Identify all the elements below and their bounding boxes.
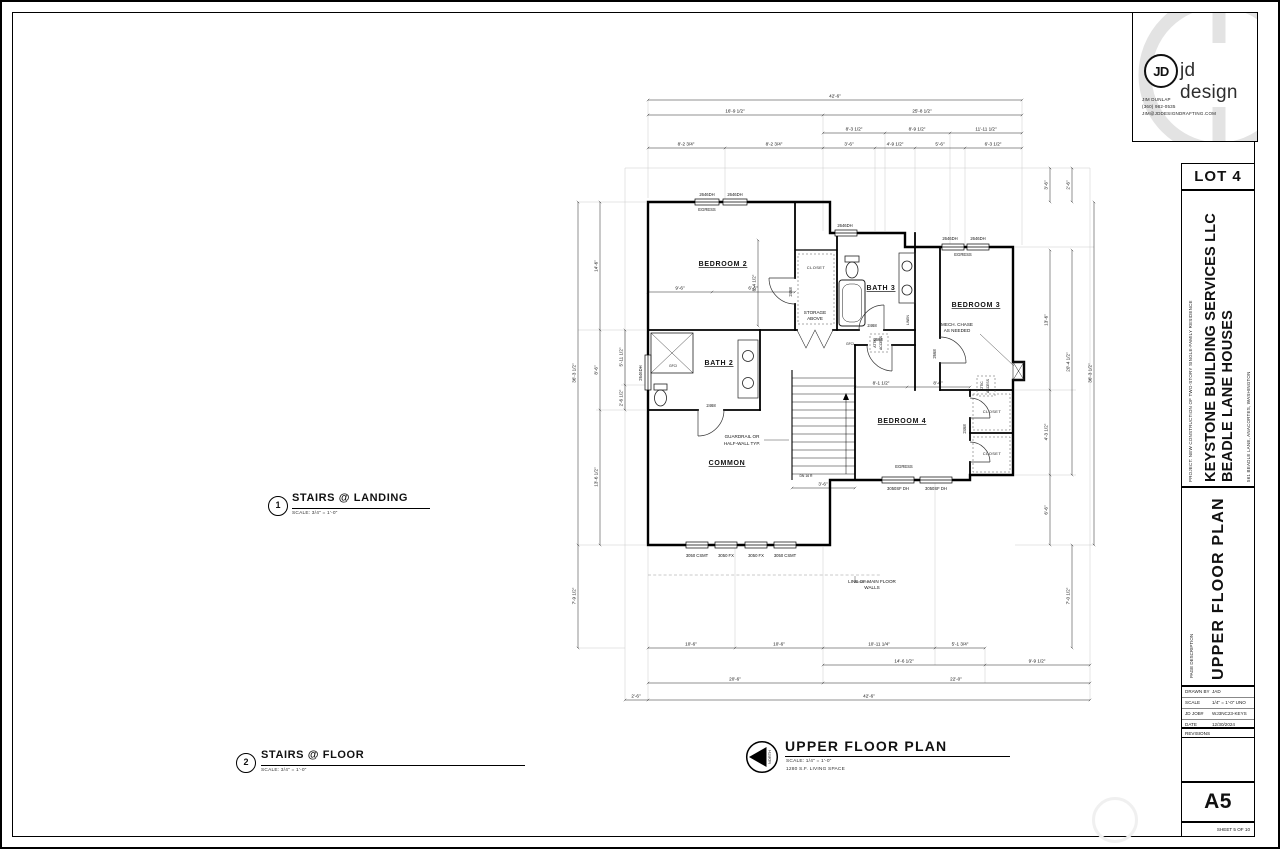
job-label: JD JOB#: [1182, 709, 1212, 719]
callout-1-bubble: 1: [268, 496, 288, 516]
callout-2-bubble: 2: [236, 753, 256, 773]
dim-label: 7'-0 1/2": [1066, 587, 1071, 604]
room-label-closet: CLOSET: [807, 265, 826, 270]
egress-label: EGRESS: [698, 207, 716, 212]
dim-label: 36'-3 1/2": [1088, 363, 1093, 383]
room-label-common: COMMON: [709, 460, 746, 467]
dim-label: 9'-6": [675, 286, 685, 291]
dim-label: 42'-6": [863, 694, 875, 699]
dim-label: 5'-1 3/4": [952, 642, 969, 647]
sheet-number: A5: [1181, 782, 1255, 822]
stairs-dn-note: DN 16 R: [799, 474, 813, 478]
dim-label: 6'-6": [1044, 505, 1049, 515]
door-tag: 2468: [788, 287, 793, 297]
project-address: 561 BEADLE LANE, ANACORTES, WASHINGTON: [1246, 371, 1251, 482]
mech-chase-note: MECH. CHASE: [941, 322, 973, 327]
door-tag: 2468: [867, 323, 877, 328]
callout-1-underline: [292, 508, 430, 509]
dim-label: 13'-6 1/2": [594, 467, 599, 487]
sheet-page-title: UPPER FLOOR PLAN: [1210, 497, 1228, 680]
door-tag: 2468: [706, 403, 716, 408]
guardrail-note: GUARDRAIL OR: [725, 434, 760, 439]
dim-label: 3'-6": [1044, 180, 1049, 190]
jd-monogram-icon: JD: [1153, 64, 1169, 79]
dim-label: 8'-3 1/2": [846, 127, 863, 132]
contact-email: JIM@JDDESIGNDRAFTING.COM: [1142, 110, 1216, 117]
sheet-count-label: SHEET 5 OF 10: [1181, 822, 1255, 837]
plan-title: UPPER FLOOR PLAN: [785, 738, 947, 754]
client-line2: BEADLE LANE HOUSES: [1220, 213, 1237, 482]
north-arrow-icon: NORTH: [745, 740, 779, 774]
revisions-label: REVISIONS: [1182, 729, 1254, 738]
dim-label: 14'-6 1/2": [894, 659, 914, 664]
room-label-closet: CLOSET: [983, 451, 1002, 456]
callout-1-scale: SCALE: 3/4" = 1'-0": [292, 511, 338, 516]
dim-label: 13'-6": [1044, 314, 1049, 326]
window-tag: 3050 CSMT: [774, 553, 797, 558]
door-tag: 2468: [962, 424, 967, 434]
contact-name: JIM DUNLAP: [1142, 96, 1216, 103]
window-tag: 3050 FX: [718, 553, 734, 558]
door-tag: 2668: [873, 337, 883, 342]
door-tag: 2668: [932, 349, 937, 359]
room-label-bedroom2: BEDROOM 2: [699, 261, 748, 268]
dim-label: 2'-6 1/2": [619, 389, 624, 406]
dim-label: 5'-11 1/2": [619, 347, 624, 366]
storage-note: STORAGE: [804, 310, 826, 315]
window-tag: 3050 FX: [748, 553, 764, 558]
dim-label: 8'-2 3/4": [766, 142, 783, 147]
dimension-labels: 42'-6" 16'-9 1/2" 25'-8 1/2" 8'-3 1/2" 8…: [572, 94, 1093, 699]
window-tag: 3050SF DH: [925, 486, 947, 491]
window-tag: 2646DH: [970, 236, 985, 241]
dim-label: 10'-6": [685, 642, 697, 647]
dim-label: 10'-6": [773, 642, 785, 647]
main-floor-walls-note: WALLS: [864, 585, 879, 590]
client-line1: KEYSTONE BUILDING SERVICES LLC: [1203, 213, 1220, 482]
job-row: JD JOB# WJ3NC23-KEYS: [1182, 709, 1254, 720]
callout-2-title: STAIRS @ FLOOR: [261, 749, 364, 761]
window-tag: 3050 CSMT: [686, 553, 709, 558]
stairs: [792, 370, 855, 480]
linen-label: LINEN: [906, 314, 910, 325]
dim-label: 8'-1 1/2": [873, 381, 890, 386]
dim-label: 42'-6": [829, 94, 841, 99]
egress-label: EGRESS: [895, 464, 913, 469]
dim-label: 4'-3 1/2": [1044, 423, 1049, 440]
plan-title-scale: SCALE: 1/4" = 1'-0": [786, 759, 832, 764]
storage-note: ABOVE: [807, 316, 823, 321]
room-label-bath3: BATH 3: [867, 285, 896, 292]
north-label: NORTH: [767, 750, 772, 764]
attic-access-note: ACCESS: [986, 378, 990, 393]
dim-label: 8'-6": [594, 365, 599, 375]
callout-2-scale: SCALE: 3/4" = 1'-0": [261, 768, 307, 773]
contact-phone: (360) 982-0535: [1142, 103, 1216, 110]
window-tag: 3050SF DH: [887, 486, 909, 491]
dim-label: 11'-11 1/2": [975, 127, 997, 132]
dim-label: 22'-0": [950, 677, 962, 682]
window-tag: 2646DH: [942, 236, 957, 241]
construction-lines: [578, 100, 1094, 700]
window-tag: 2646DH: [638, 365, 643, 380]
dim-label: 8'-9 1/2": [909, 127, 926, 132]
dim-label: 3'-6": [844, 142, 854, 147]
dim-label: 20'-4 1/2": [1066, 352, 1071, 372]
dim-label: 2'-6": [1066, 180, 1071, 190]
job-value: WJ3NC23-KEYS: [1212, 709, 1254, 719]
callout-1-title: STAIRS @ LANDING: [292, 492, 408, 504]
dim-label: 8'-6": [933, 381, 943, 386]
drawing-info-table: DRAWN BY JAD SCALE 1/4" = 1'-0" UNO JD J…: [1181, 686, 1255, 728]
attic-access-note: ATTIC: [980, 381, 984, 391]
scale-row: SCALE 1/4" = 1'-0" UNO: [1182, 698, 1254, 709]
dim-label: 8'-2 3/4": [678, 142, 695, 147]
dim-label: 36'-3 1/2": [572, 363, 577, 383]
gfci-label: GFCI: [669, 364, 677, 368]
mech-chase-note: AS NEEDED: [944, 328, 971, 333]
scale-label: SCALE: [1182, 698, 1212, 708]
drawn-by-row: DRAWN BY JAD: [1182, 687, 1254, 698]
drawn-by-label: DRAWN BY: [1182, 687, 1212, 697]
lot-number: LOT 4: [1181, 163, 1255, 190]
plan-title-area: 1280 S.F. LIVING SPACE: [786, 767, 845, 772]
window-tag: 2646DH: [837, 223, 852, 228]
drawn-by-value: JAD: [1212, 687, 1254, 697]
floor-plan-drawing: 42'-6" 16'-9 1/2" 25'-8 1/2" 8'-3 1/2" 8…: [552, 88, 1100, 748]
dim-label: 2'-6": [631, 694, 641, 699]
room-label-bath2: BATH 2: [705, 360, 734, 367]
dim-label: 6'-3 1/2": [985, 142, 1002, 147]
dim-label: 4'-9 1/2": [887, 142, 904, 147]
page-description-label: PAGE DESCRIPTION: [1189, 634, 1194, 678]
scale-value: 1/4" = 1'-0" UNO: [1212, 698, 1254, 708]
plan-title-underline: [785, 756, 1010, 757]
dim-label: 7'-9 1/2": [572, 587, 577, 604]
dim-label: 16'-9 1/2": [725, 109, 745, 114]
project-note: PROJECT: NEW CONSTRUCTION OF TWO-STORY S…: [1188, 300, 1193, 482]
egress-label: EGRESS: [954, 252, 972, 257]
revisions-box: REVISIONS: [1181, 728, 1255, 782]
room-label-bedroom4: BEDROOM 4: [878, 418, 927, 425]
dim-label: 10'-11 1/4": [868, 642, 890, 647]
watermark-ring: [1092, 797, 1138, 843]
guardrail-note: HALF-WALL TYP.: [724, 441, 760, 446]
dim-label: 9'-9 1/2": [1029, 659, 1046, 664]
dim-label: 20'-6": [729, 677, 741, 682]
room-label-closet: CLOSET: [983, 409, 1002, 414]
logo-box: JD jd design JIM DUNLAP (360) 982-0535 J…: [1132, 12, 1258, 142]
dim-label: 5'-6": [935, 142, 945, 147]
main-floor-walls-note: LINE OF MAIN FLOOR: [848, 579, 896, 584]
client-name: KEYSTONE BUILDING SERVICES LLC BEADLE LA…: [1203, 213, 1237, 482]
closet-dashed-details: [798, 254, 1010, 472]
gfci-label: GFCI: [846, 342, 854, 346]
window-tag: 2646DH: [727, 192, 742, 197]
dim-label: 14'-6": [594, 260, 599, 272]
windows: [645, 199, 989, 548]
room-label-bedroom3: BEDROOM 3: [952, 302, 1001, 309]
dim-label: 25'-8 1/2": [912, 109, 932, 114]
window-tag: 2646DH: [699, 192, 714, 197]
dimension-lines: [578, 100, 1094, 700]
callout-2-underline: [261, 765, 525, 766]
dim-label: 8'-4 1/2": [752, 274, 757, 291]
dim-label: 3'-6": [818, 482, 828, 487]
